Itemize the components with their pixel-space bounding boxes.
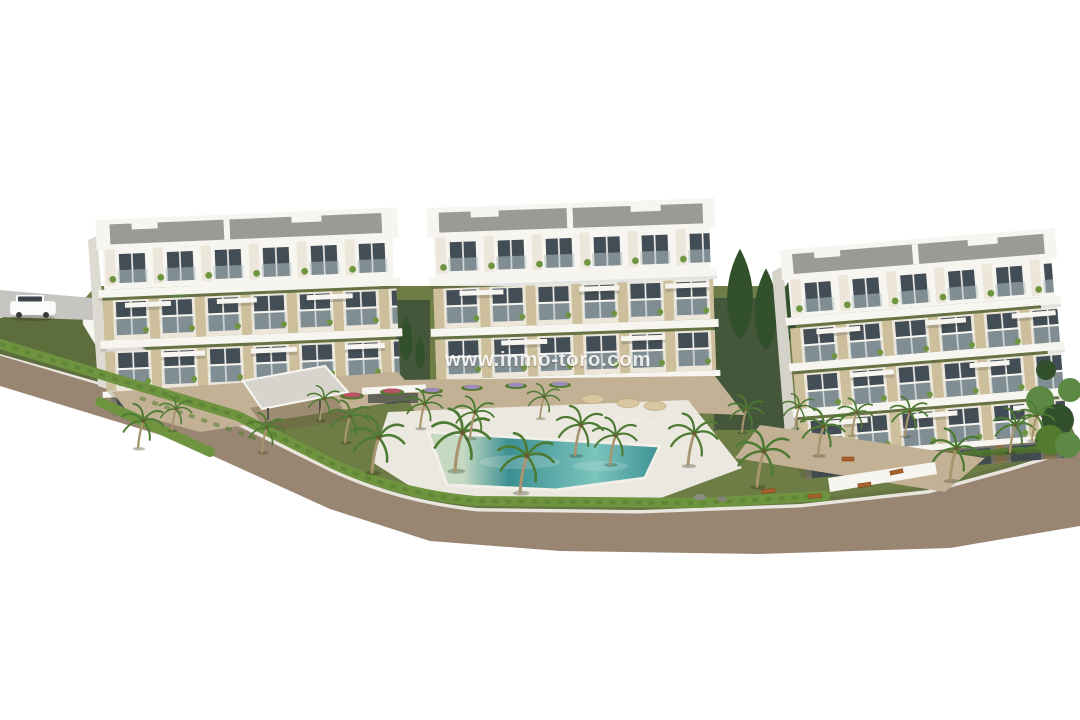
van-wheel bbox=[16, 312, 22, 318]
water-highlight bbox=[572, 461, 628, 471]
roof-box bbox=[131, 218, 157, 229]
building-center bbox=[426, 198, 721, 406]
roof-divider bbox=[567, 208, 574, 228]
roof-box bbox=[814, 246, 841, 258]
van-wheel bbox=[43, 312, 49, 318]
roof-divider bbox=[223, 219, 230, 239]
van-windows bbox=[18, 297, 42, 302]
render-canvas: www.inmo-toro.com bbox=[0, 0, 1080, 720]
watermark-text: www.inmo-toro.com bbox=[444, 348, 651, 371]
roof-box bbox=[291, 212, 321, 223]
roof-box bbox=[470, 206, 498, 217]
roof-box bbox=[630, 201, 660, 212]
